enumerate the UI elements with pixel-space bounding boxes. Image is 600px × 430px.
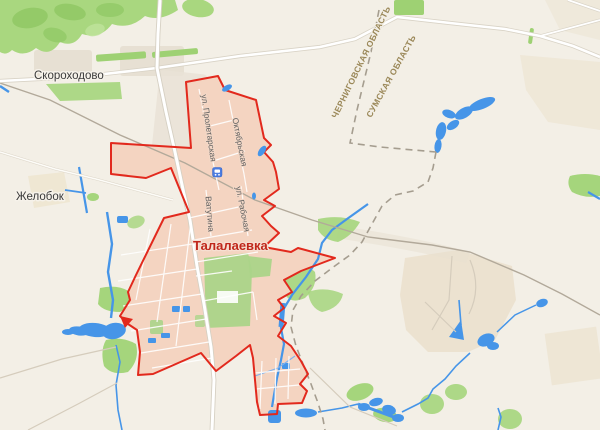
settlement-label-talalaevka: Талалаевка	[193, 238, 269, 253]
train-station-icon[interactable]	[213, 168, 223, 178]
town-label-zhelobok: Желобок	[16, 191, 65, 203]
town-label-skorokhodovo: Скороходово	[34, 70, 104, 82]
map-canvas[interactable]: Скороходово Желобок Талалаевка ул. Проле…	[0, 0, 600, 430]
